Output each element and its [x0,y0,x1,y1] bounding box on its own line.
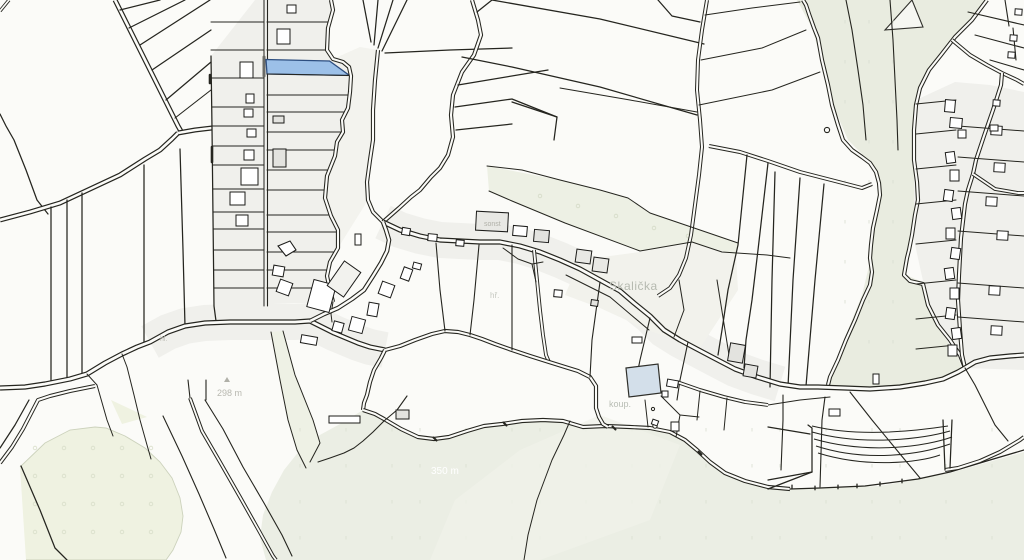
svg-text:hl.: hl. [160,336,167,343]
svg-text:298 m: 298 m [217,388,242,398]
svg-text:Skalička: Skalička [609,279,658,293]
svg-text:koup.: koup. [609,399,631,409]
svg-text:sonst: sonst [484,221,501,228]
svg-text:350 m: 350 m [431,466,459,477]
svg-text:hř.: hř. [490,291,499,300]
